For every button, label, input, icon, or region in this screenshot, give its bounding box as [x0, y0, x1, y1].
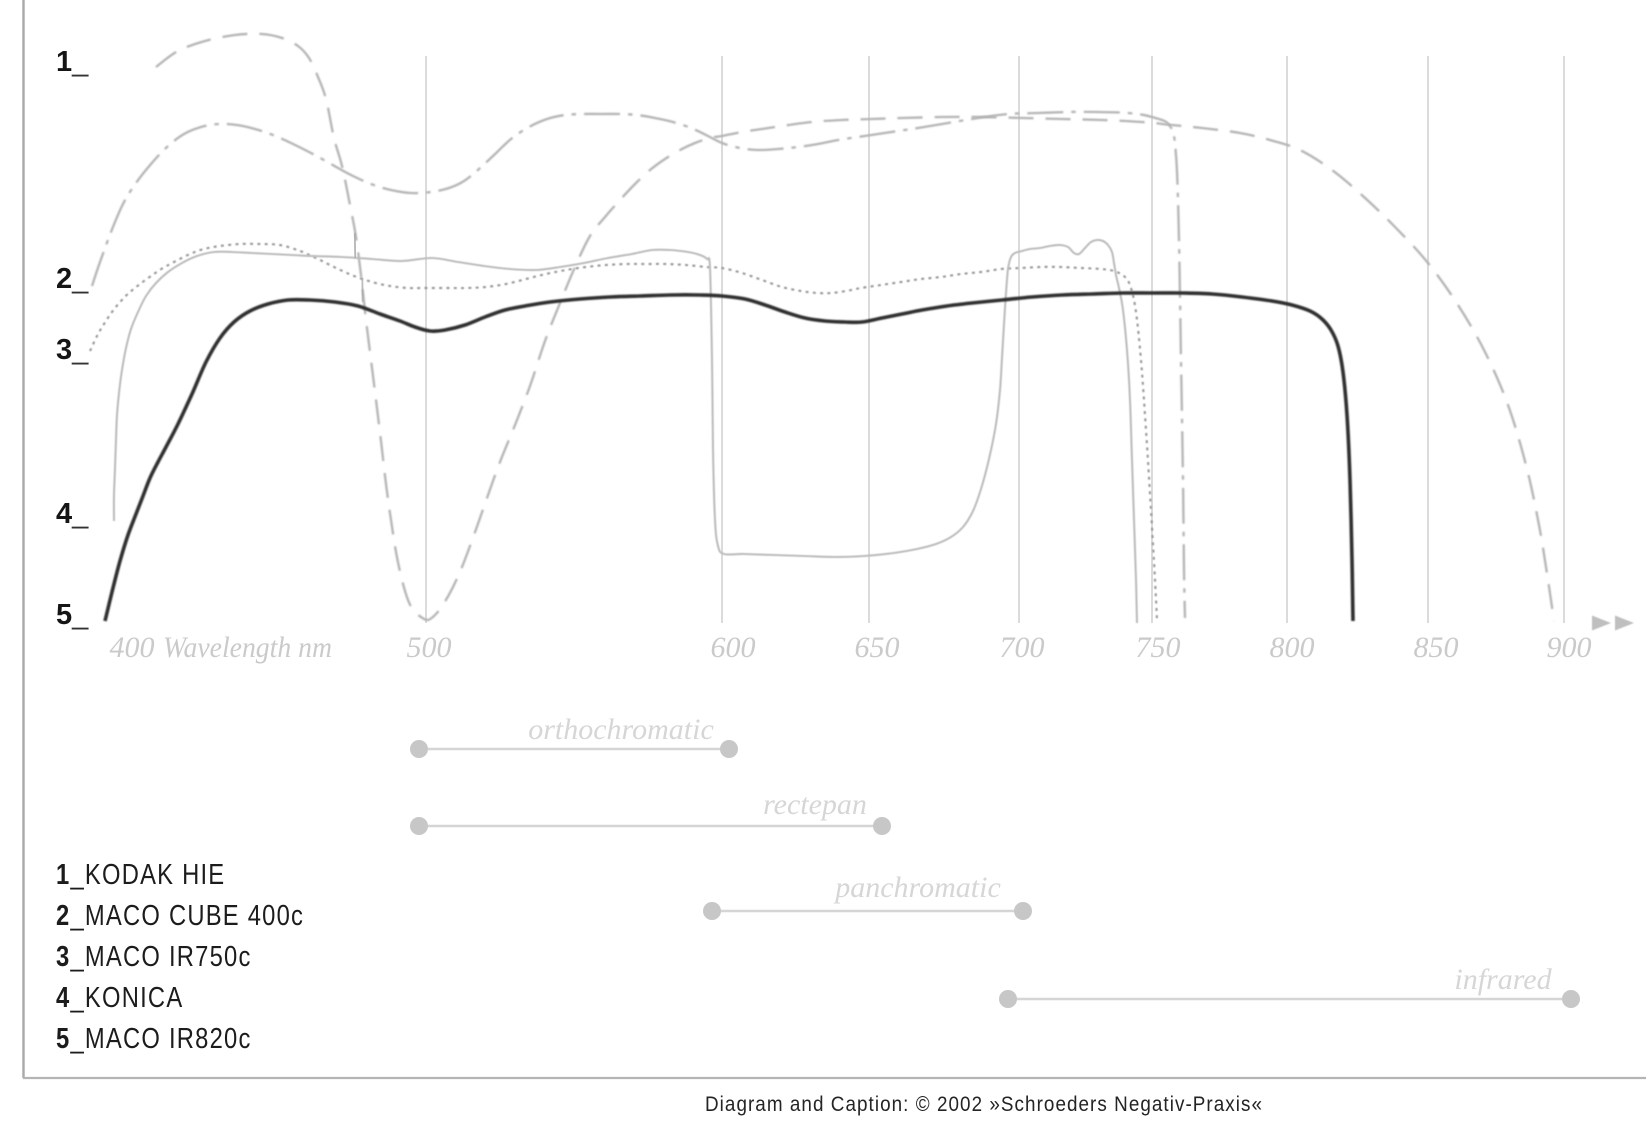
svg-text:2_MACO CUBE 400c: 2_MACO CUBE 400c: [56, 899, 304, 932]
svg-text:650: 650: [855, 631, 900, 664]
svg-text:800: 800: [1270, 631, 1315, 664]
svg-text:5_MACO IR820c: 5_MACO IR820c: [56, 1022, 252, 1055]
svg-text:Diagram and Caption: © 2002 »S: Diagram and Caption: © 2002 »Schroeders …: [705, 1092, 1263, 1116]
svg-text:900: 900: [1547, 631, 1592, 664]
svg-text:rectepan: rectepan: [763, 788, 867, 821]
svg-text:3_MACO IR750c: 3_MACO IR750c: [56, 940, 252, 973]
svg-text:700: 700: [1000, 631, 1045, 664]
svg-text:2_: 2_: [56, 263, 89, 295]
svg-text:750: 750: [1136, 631, 1181, 664]
svg-text:panchromatic: panchromatic: [833, 871, 1001, 904]
svg-text:400: 400: [110, 631, 155, 664]
svg-text:Wavelength nm: Wavelength nm: [163, 631, 332, 664]
svg-text:3_: 3_: [56, 334, 89, 366]
svg-text:4_KONICA: 4_KONICA: [56, 981, 183, 1014]
svg-text:600: 600: [711, 631, 756, 664]
svg-text:5_: 5_: [56, 599, 89, 631]
svg-text:850: 850: [1414, 631, 1459, 664]
svg-text:orthochromatic: orthochromatic: [528, 713, 714, 746]
svg-text:1_KODAK HIE: 1_KODAK HIE: [56, 858, 225, 891]
svg-text:4_: 4_: [56, 498, 89, 530]
svg-text:500: 500: [407, 631, 452, 664]
svg-text:infrared: infrared: [1454, 963, 1552, 996]
svg-text:1_: 1_: [56, 46, 89, 78]
